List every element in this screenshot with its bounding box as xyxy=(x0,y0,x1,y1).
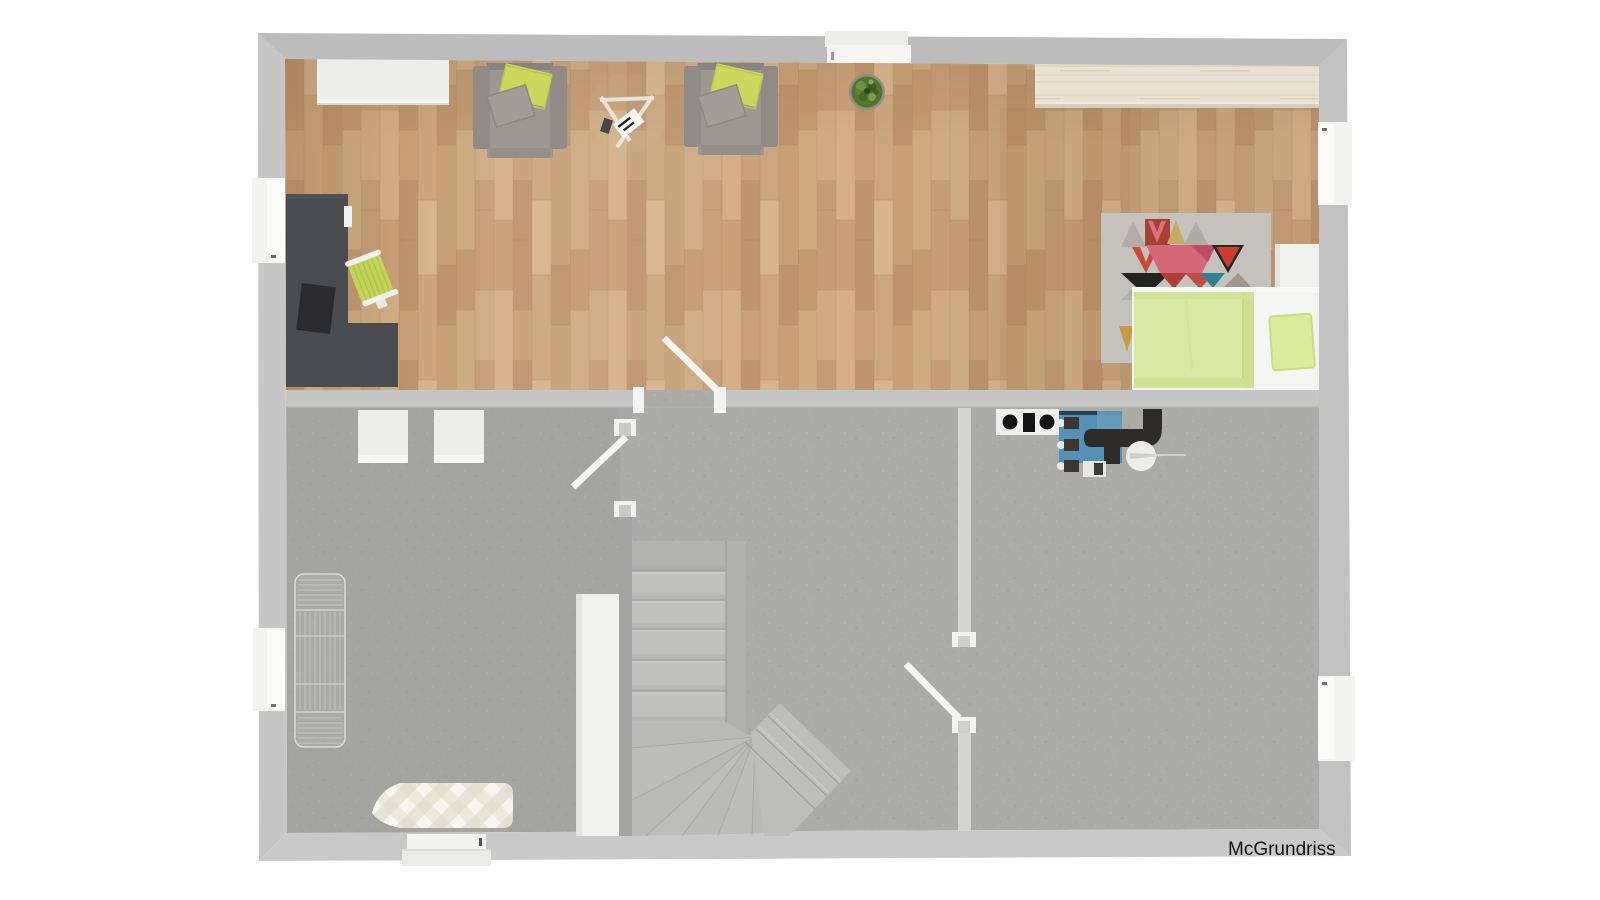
svg-text:McGrundriss: McGrundriss xyxy=(1228,839,1336,860)
